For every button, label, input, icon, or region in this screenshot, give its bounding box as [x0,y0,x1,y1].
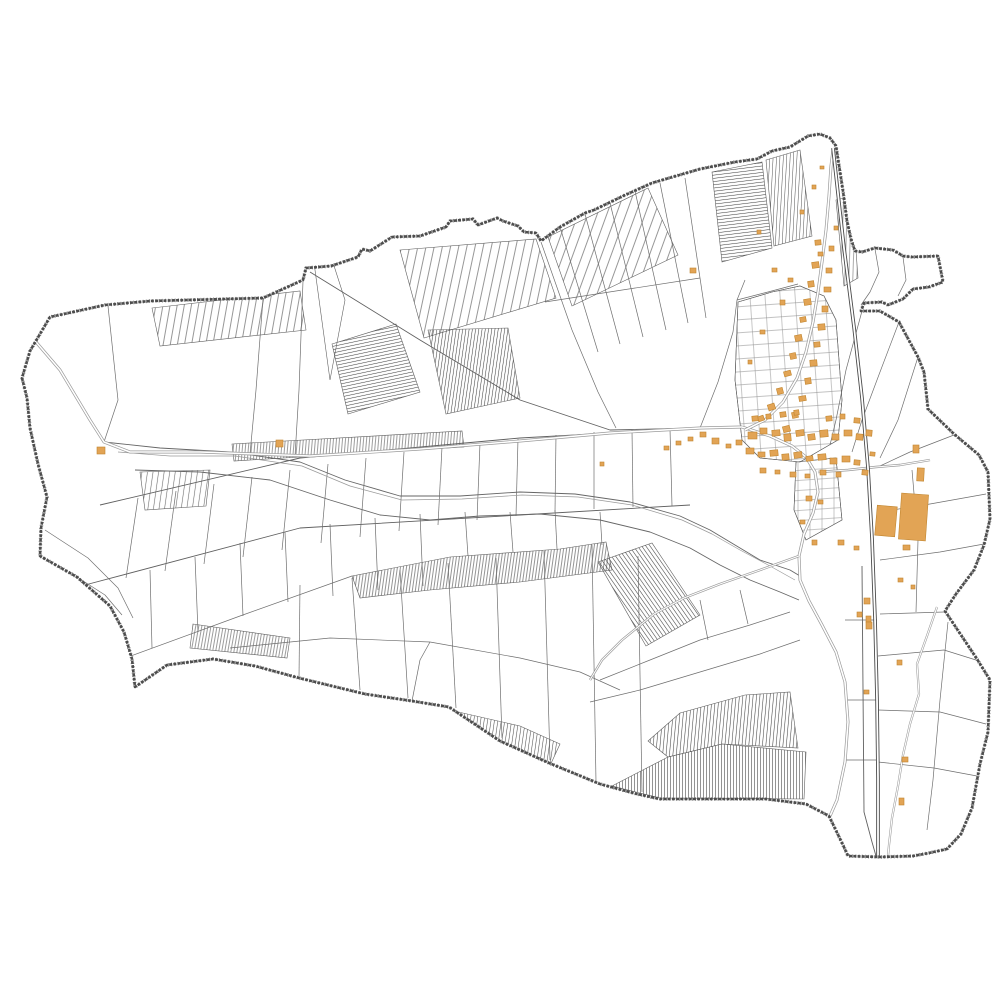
municipality-interior [36,148,986,856]
cadastral-map-canvas [0,0,1000,1000]
strip-parcel-zones [140,150,858,799]
cadastral-map-viewport [0,0,1000,1000]
stream-lines [888,607,937,856]
